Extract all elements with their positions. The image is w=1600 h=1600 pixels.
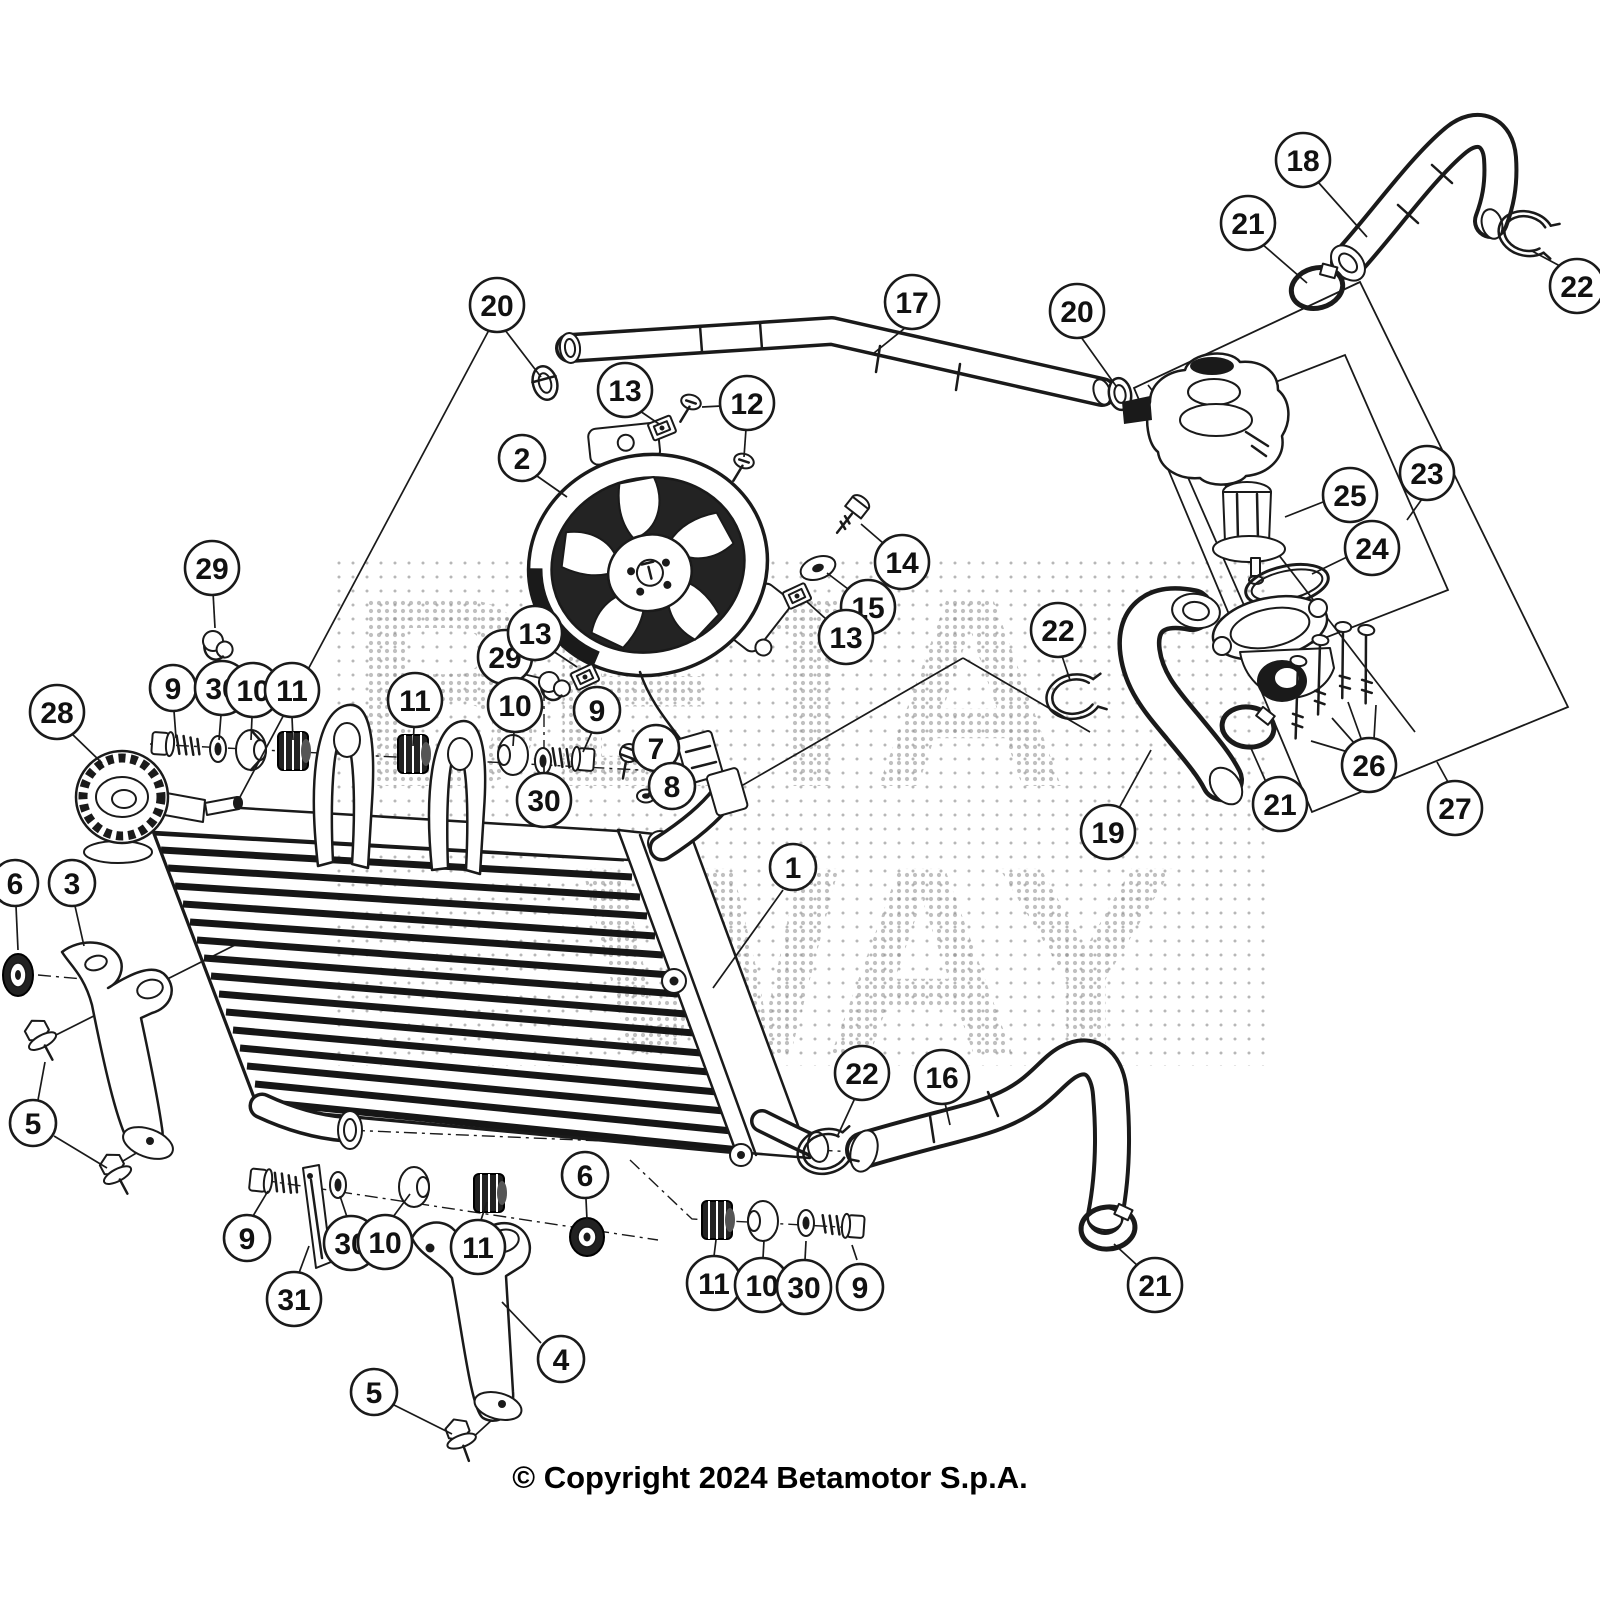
callout-number: 28 bbox=[40, 697, 73, 730]
callout-number: 22 bbox=[1041, 615, 1074, 648]
callout-13-23: 13 bbox=[508, 606, 562, 660]
bracket-3 bbox=[62, 943, 177, 1166]
callout-30-26: 30 bbox=[517, 773, 571, 827]
bushing-11-d bbox=[702, 1201, 735, 1239]
callout-number: 11 bbox=[698, 1268, 730, 1301]
leader-line-12 bbox=[702, 406, 721, 407]
washer-30-a bbox=[210, 736, 226, 762]
callout-number: 5 bbox=[366, 1377, 383, 1410]
callout-number: 16 bbox=[925, 1062, 958, 1095]
callout-number: 26 bbox=[1352, 750, 1385, 783]
leader-line-30 bbox=[805, 1241, 806, 1260]
leader-line-9 bbox=[174, 711, 176, 738]
bolt-5-b bbox=[93, 1148, 140, 1201]
screw-12-a bbox=[675, 392, 703, 426]
leader-line-26 bbox=[1311, 741, 1348, 752]
callout-2-8: 2 bbox=[499, 435, 545, 481]
leader-line-5 bbox=[54, 1136, 107, 1168]
callout-25-12: 25 bbox=[1323, 468, 1377, 522]
callout-number: 9 bbox=[852, 1272, 869, 1305]
callout-number: 13 bbox=[608, 375, 641, 408]
callout-number: 23 bbox=[1410, 458, 1443, 491]
leader-line-6 bbox=[16, 906, 18, 950]
callout-number: 4 bbox=[553, 1344, 570, 1377]
callout-11-20: 11 bbox=[265, 663, 319, 717]
washer-30-b bbox=[535, 748, 551, 774]
bolt-14 bbox=[829, 492, 872, 539]
callout-number: 9 bbox=[239, 1223, 256, 1256]
callout-number: 10 bbox=[498, 690, 531, 723]
parts-diagram: BETA WAY bbox=[0, 0, 1600, 1600]
callout-14-9: 14 bbox=[875, 535, 929, 589]
callout-number: 11 bbox=[399, 685, 431, 718]
callout-21-52: 21 bbox=[1128, 1258, 1182, 1312]
callout-22-38: 22 bbox=[835, 1046, 889, 1100]
callout-number: 14 bbox=[885, 547, 919, 580]
leader-line-2 bbox=[537, 476, 567, 497]
leader-line-31 bbox=[299, 1246, 309, 1273]
leader-line-26 bbox=[1348, 702, 1362, 741]
callout-number: 5 bbox=[25, 1108, 42, 1141]
callout-19-33: 19 bbox=[1081, 805, 1135, 859]
copyright-text: © Copyright 2024 Betamotor S.p.A. bbox=[512, 1460, 1027, 1495]
callout-22-2: 22 bbox=[1550, 259, 1600, 313]
bushing-11-c bbox=[474, 1174, 507, 1212]
callout-number: 10 bbox=[745, 1270, 778, 1303]
callout-9-40: 9 bbox=[224, 1215, 270, 1261]
bushing-11-a bbox=[278, 732, 311, 770]
callout-17-3: 17 bbox=[885, 275, 939, 329]
callout-number: 9 bbox=[589, 695, 606, 728]
leader-line-30 bbox=[340, 1196, 347, 1217]
callout-11-21: 11 bbox=[388, 673, 442, 727]
callout-number: 30 bbox=[787, 1272, 820, 1305]
clamp-29-a bbox=[199, 626, 235, 663]
callout-number: 21 bbox=[1138, 1270, 1171, 1303]
callout-18-0: 18 bbox=[1276, 133, 1330, 187]
callout-number: 17 bbox=[895, 287, 928, 320]
leader-line-11 bbox=[413, 727, 414, 746]
callout-5-47: 5 bbox=[351, 1369, 397, 1415]
leader-line-10 bbox=[251, 717, 252, 740]
callout-22-29: 22 bbox=[1031, 603, 1085, 657]
callout-5-37: 5 bbox=[10, 1100, 56, 1146]
leader-line-10 bbox=[513, 732, 514, 746]
callout-number: 6 bbox=[7, 868, 24, 901]
callout-13-6: 13 bbox=[598, 363, 652, 417]
leader-line-26 bbox=[1374, 705, 1376, 739]
callout-6-30: 6 bbox=[0, 860, 38, 906]
leader-line-9 bbox=[852, 1245, 857, 1260]
washer-30-d bbox=[798, 1210, 814, 1236]
callout-number: 11 bbox=[276, 675, 308, 708]
leader-line-26 bbox=[1332, 718, 1355, 744]
leader-line-5 bbox=[394, 1405, 452, 1434]
callout-number: 27 bbox=[1438, 793, 1471, 826]
callout-number: 2 bbox=[514, 443, 531, 476]
callout-9-51: 9 bbox=[837, 1264, 883, 1310]
callout-4-46: 4 bbox=[538, 1336, 584, 1382]
callout-number: 7 bbox=[648, 733, 665, 766]
callout-27-36: 27 bbox=[1428, 781, 1482, 835]
leader-line-6 bbox=[586, 1199, 587, 1220]
callout-number: 3 bbox=[64, 868, 81, 901]
callout-number: 8 bbox=[664, 771, 681, 804]
leader-line-12 bbox=[744, 429, 746, 457]
leader-line-11 bbox=[292, 717, 293, 740]
callout-number: 31 bbox=[277, 1284, 310, 1317]
leader-line-20 bbox=[505, 330, 541, 377]
callout-number: 20 bbox=[480, 290, 513, 323]
callout-1-32: 1 bbox=[770, 844, 816, 890]
lower-mount-row bbox=[249, 1165, 865, 1466]
leader-line-25 bbox=[1285, 502, 1323, 517]
leader-line-11 bbox=[714, 1240, 716, 1256]
callout-number: 9 bbox=[165, 673, 182, 706]
callout-9-17: 9 bbox=[150, 665, 196, 711]
callout-20-4: 20 bbox=[470, 278, 524, 332]
callout-10-43: 10 bbox=[358, 1215, 412, 1269]
callout-26-35: 26 bbox=[1342, 738, 1396, 792]
leader-line-21 bbox=[1262, 244, 1307, 283]
callout-30-50: 30 bbox=[777, 1260, 831, 1314]
leader-line-5 bbox=[38, 1062, 45, 1100]
leader-line-9 bbox=[253, 1191, 268, 1216]
callout-28-16: 28 bbox=[30, 685, 84, 739]
callout-number: 22 bbox=[1560, 271, 1593, 304]
leader-line-10 bbox=[763, 1240, 764, 1258]
callout-8-28: 8 bbox=[649, 763, 695, 809]
callout-number: 6 bbox=[577, 1160, 594, 1193]
callout-31-41: 31 bbox=[267, 1272, 321, 1326]
grommet-6-b bbox=[570, 1218, 604, 1256]
ring-20-a bbox=[529, 363, 561, 402]
spacer-10-c bbox=[399, 1167, 429, 1207]
callout-11-48: 11 bbox=[687, 1256, 741, 1310]
callout-number: 25 bbox=[1333, 480, 1366, 513]
callout-number: 18 bbox=[1286, 145, 1319, 178]
radiator-cap bbox=[76, 751, 168, 863]
callout-number: 21 bbox=[1231, 208, 1264, 241]
clamp-21-a bbox=[1286, 260, 1347, 314]
callout-13-11: 13 bbox=[819, 610, 873, 664]
callout-9-25: 9 bbox=[574, 687, 620, 733]
bolt-5-a bbox=[18, 1014, 65, 1067]
callout-21-34: 21 bbox=[1253, 777, 1307, 831]
callout-21-1: 21 bbox=[1221, 196, 1275, 250]
callout-number: 29 bbox=[195, 553, 228, 586]
callout-10-24: 10 bbox=[488, 678, 542, 732]
callout-number: 10 bbox=[368, 1227, 401, 1260]
callout-number: 20 bbox=[1060, 296, 1093, 329]
callout-number: 11 bbox=[462, 1232, 494, 1265]
leader-line-3 bbox=[75, 906, 84, 946]
bushing-11-b bbox=[398, 735, 431, 773]
callout-number: 12 bbox=[730, 388, 763, 421]
callout-number: 13 bbox=[829, 622, 862, 655]
spacer-10-d bbox=[748, 1201, 778, 1241]
callout-number: 13 bbox=[518, 618, 551, 651]
washer-30-c bbox=[330, 1172, 346, 1198]
screw-12-b bbox=[728, 451, 756, 485]
callout-number: 1 bbox=[785, 852, 802, 885]
leader-line-29 bbox=[213, 592, 215, 628]
callout-3-31: 3 bbox=[49, 860, 95, 906]
callout-12-7: 12 bbox=[720, 376, 774, 430]
callout-number: 22 bbox=[845, 1058, 878, 1091]
callout-23-13: 23 bbox=[1400, 446, 1454, 500]
hose-18 bbox=[1324, 131, 1505, 287]
bolt-5-c bbox=[440, 1414, 483, 1466]
callout-number: 24 bbox=[1355, 533, 1389, 566]
leader-line-13 bbox=[640, 411, 659, 424]
leader-line-18 bbox=[1318, 182, 1367, 237]
callout-number: 30 bbox=[527, 785, 560, 818]
callout-6-45: 6 bbox=[562, 1152, 608, 1198]
callout-number: 19 bbox=[1091, 817, 1124, 850]
leader-line-21 bbox=[1114, 1244, 1138, 1266]
washer-6-a bbox=[3, 954, 33, 996]
callout-20-5: 20 bbox=[1050, 284, 1104, 338]
leader-line-28 bbox=[71, 733, 102, 763]
thermostat-housing-upper bbox=[1122, 354, 1288, 485]
callout-24-14: 24 bbox=[1345, 521, 1399, 575]
callout-11-44: 11 bbox=[451, 1220, 505, 1274]
leader-line-27 bbox=[1437, 762, 1448, 782]
callout-number: 21 bbox=[1263, 789, 1296, 822]
callout-16-39: 16 bbox=[915, 1050, 969, 1104]
screw-9-d bbox=[821, 1212, 865, 1239]
callout-29-15: 29 bbox=[185, 541, 239, 595]
